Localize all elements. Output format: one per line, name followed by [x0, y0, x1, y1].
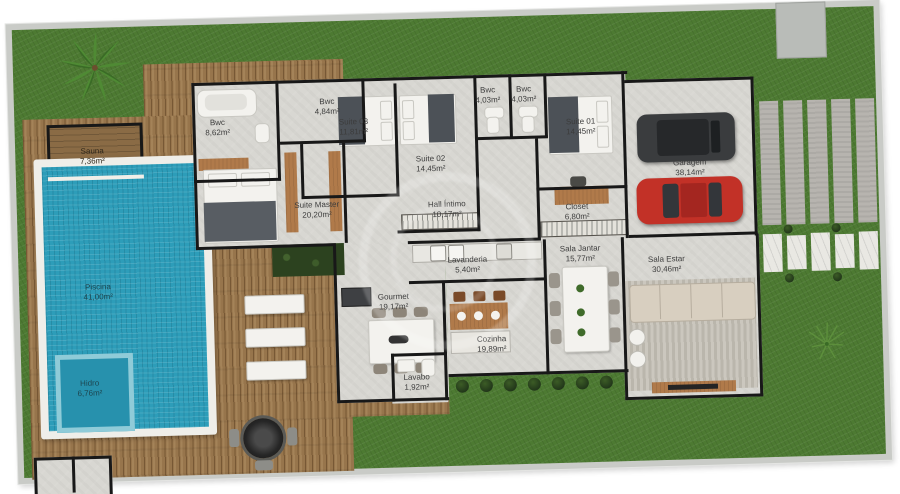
- room-label-bwc-1: Bwc8,62m²: [205, 118, 230, 139]
- room-label-suite-master: Suite Master20,20m²: [294, 200, 339, 222]
- sun-lounger: [246, 360, 307, 381]
- bed-blanket: [428, 94, 455, 143]
- room-label-sala-jantar: Sala Jantar15,77m²: [560, 243, 601, 265]
- fire-pit-chair: [255, 460, 273, 470]
- washer: [430, 245, 446, 261]
- room-label-sauna: Sauna7,36m²: [80, 146, 105, 167]
- sofa: [629, 281, 756, 323]
- room-label-lavabo: Lavabo1,92m²: [403, 372, 430, 394]
- room-label-gourmet: Gourmet19,17m²: [378, 292, 410, 314]
- red-car-windshield: [708, 182, 722, 216]
- fire-pit-chair: [229, 429, 239, 447]
- room-label-suite-03: Suite 0311,81m²: [339, 117, 369, 139]
- suv-roof: [657, 119, 710, 156]
- dining-chair: [550, 301, 561, 316]
- dining-chair: [550, 329, 561, 344]
- room-label-suite-01: Suite 0114,45m²: [566, 117, 596, 139]
- palm-tree: [52, 25, 138, 111]
- toilet: [521, 116, 534, 133]
- table-centerpiece: [388, 335, 408, 344]
- grill: [341, 287, 372, 307]
- room-label-bwc-2: Bwc4,84m²: [314, 97, 339, 118]
- pillow: [402, 121, 415, 140]
- kitchen-stool: [493, 290, 505, 300]
- floor-plan-canvas: Sauna7,36m² Piscina41,00m² Hidro6,76m² B…: [0, 0, 900, 494]
- laundry-sink: [496, 243, 512, 259]
- site-plan: Sauna7,36m² Piscina41,00m² Hidro6,76m² B…: [0, 0, 900, 494]
- sink: [397, 359, 415, 372]
- driveway-paver: [855, 98, 877, 222]
- pillow: [380, 101, 393, 120]
- room-label-bwc-3: Bwc4,03m²: [475, 85, 500, 106]
- grass-plant: [798, 317, 855, 367]
- room-label-piscina: Piscina41,00m²: [83, 282, 113, 304]
- driveway-paver: [807, 99, 829, 223]
- desk-chair: [570, 176, 586, 186]
- dining-chair: [609, 327, 620, 342]
- room-label-cozinha: Cozinha19,89m²: [477, 334, 507, 356]
- dining-chair: [609, 299, 620, 314]
- dining-table: [562, 266, 610, 353]
- red-car-rear-glass: [662, 184, 679, 218]
- dining-chair: [549, 273, 560, 288]
- dining-chair: [608, 271, 619, 286]
- sun-lounger: [244, 294, 305, 315]
- walkway-slab: [763, 234, 783, 273]
- room-label-closet: Closet6,80m²: [564, 202, 589, 223]
- kitchen-stool: [453, 292, 465, 302]
- red-car-roof: [680, 183, 707, 218]
- walkway-slab: [835, 234, 855, 269]
- gourmet-chair: [414, 307, 428, 317]
- bathtub-basin: [205, 94, 247, 111]
- room-label-bwc-4: Bwc4,03m²: [511, 84, 536, 105]
- walkway-slab: [787, 235, 807, 270]
- walkway-slab: [811, 232, 831, 271]
- toilet: [254, 123, 270, 143]
- bed-blanket: [204, 201, 277, 242]
- kitchen-stool: [473, 291, 485, 301]
- gourmet-chair: [373, 364, 387, 374]
- pillow: [597, 126, 610, 148]
- room-label-sala-estar: Sala Estar30,46m²: [648, 254, 685, 276]
- entry-gate: [775, 1, 827, 58]
- room-label-lavanderia: Lavanderia5,40m²: [447, 255, 487, 277]
- driveway-paver: [783, 100, 805, 224]
- pillow: [380, 122, 393, 141]
- pillow: [402, 100, 415, 119]
- room-label-hall-intimo: Hall Íntimo10,17m²: [428, 199, 466, 221]
- sun-lounger: [245, 327, 306, 348]
- room-label-suite-02: Suite 0214,45m²: [416, 154, 446, 176]
- room-label-garagem: Garagem38,14m²: [673, 157, 707, 179]
- suv-windshield: [711, 120, 721, 152]
- fire-pit-chair: [287, 427, 297, 445]
- walkway-slab: [859, 231, 879, 270]
- room-label-hidro: Hidro6,76m²: [77, 378, 102, 399]
- pillow: [596, 101, 609, 123]
- driveway-paver: [759, 101, 781, 225]
- toilet: [486, 117, 499, 134]
- driveway-paver: [831, 99, 853, 223]
